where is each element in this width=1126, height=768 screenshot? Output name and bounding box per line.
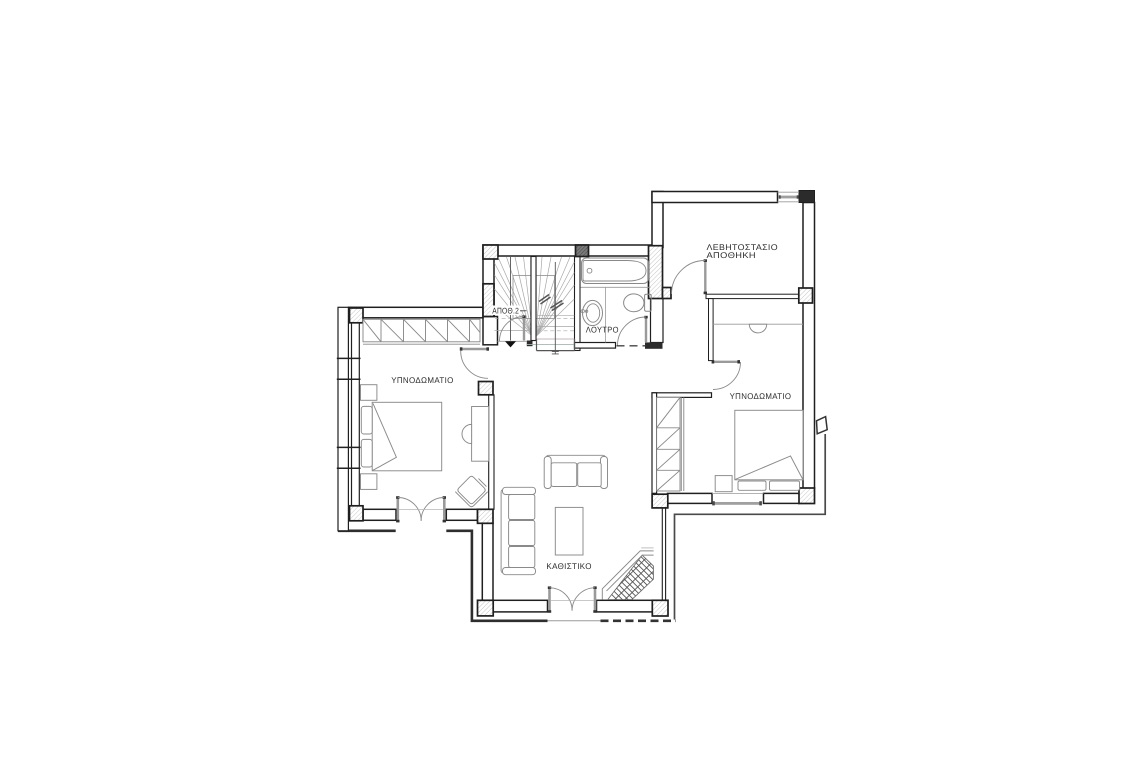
svg-text:ΚΑΘΙΣΤΙΚΟ: ΚΑΘΙΣΤΙΚΟ [546, 561, 592, 571]
svg-text:ΥΠΝΟΔΩΜΑΤΙΟ: ΥΠΝΟΔΩΜΑΤΙΟ [730, 391, 792, 401]
svg-text:ΑΠΟΘΗΚΗ: ΑΠΟΘΗΚΗ [707, 250, 757, 260]
svg-text:ΑΠΟΘ.2: ΑΠΟΘ.2 [492, 306, 519, 316]
svg-text:ΥΠΝΟΔΩΜΑΤΙΟ: ΥΠΝΟΔΩΜΑΤΙΟ [391, 375, 454, 385]
svg-text:ΛΟΥΤΡΟ: ΛΟΥΤΡΟ [586, 325, 619, 335]
